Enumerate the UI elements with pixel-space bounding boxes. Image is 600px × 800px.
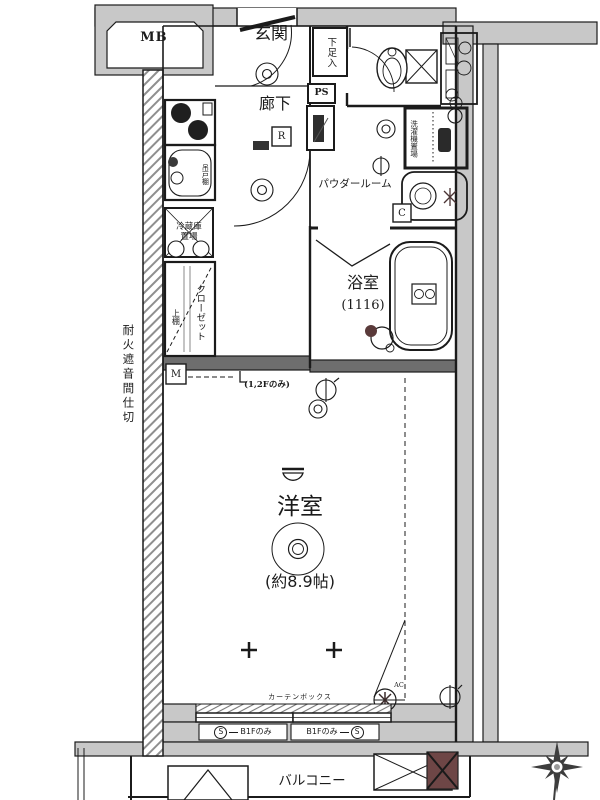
label-entrance: 玄関 bbox=[233, 20, 309, 48]
label-closet: クローゼット bbox=[191, 270, 207, 354]
stove-icon bbox=[165, 100, 215, 145]
label-corridor: 廊下 bbox=[240, 92, 310, 116]
label-western-room: 洋室 bbox=[258, 491, 342, 525]
shutter-note-left: S B1Fのみ bbox=[199, 724, 287, 740]
label-bathroom: 浴室 bbox=[330, 270, 396, 296]
outdoor-unit-space bbox=[374, 752, 458, 790]
shutter-dash bbox=[340, 732, 349, 733]
shutter-dash bbox=[229, 732, 238, 733]
label-meter-box: MB bbox=[95, 5, 213, 71]
room-ceiling-light-icon bbox=[272, 523, 324, 575]
label-hanging-cabinet: 吊戸棚 bbox=[198, 152, 211, 196]
cross-marks bbox=[241, 642, 342, 658]
powder-room-symbols bbox=[373, 120, 395, 176]
mark-m: M bbox=[166, 364, 186, 384]
label-western-room-size: (約8.9帖) bbox=[240, 569, 360, 595]
label-powder-room: パウダールーム bbox=[300, 177, 410, 193]
shutter-s-icon: S bbox=[214, 726, 227, 739]
label-pipe-space: PS bbox=[308, 84, 335, 103]
powder-room-door bbox=[234, 150, 310, 226]
shutter-note-text: B1Fのみ bbox=[240, 728, 271, 737]
partition-wall-hatched bbox=[143, 70, 163, 756]
floorplan: MB 玄関 下足入 廊下 PS パウダールーム 洗濯機置場 吊戸棚 冷蔵庫 置場… bbox=[0, 0, 600, 800]
shutter-note-right: B1Fのみ S bbox=[291, 724, 379, 740]
shutter-note-text: B1Fのみ bbox=[306, 728, 337, 737]
label-fridge-line2: 置場 bbox=[180, 233, 197, 242]
label-floor-note: (1,2Fのみ) bbox=[244, 379, 306, 393]
label-shoe-box: 下足入 bbox=[316, 30, 344, 75]
bath-folding-door bbox=[316, 240, 390, 266]
label-partition: 耐火遮音間仕切 bbox=[118, 302, 138, 447]
label-curtain-box: カーテンボックス bbox=[252, 692, 348, 703]
shutter-s-icon: S bbox=[351, 726, 364, 739]
floorplan-geometry bbox=[0, 0, 600, 800]
bathtub-icon bbox=[390, 242, 452, 350]
escape-hatch-icon bbox=[168, 766, 248, 800]
label-bathroom-size: (1116) bbox=[330, 297, 396, 315]
label-washing-machine: 洗濯機置場 bbox=[406, 111, 421, 166]
label-upper-shelf: 上棚 bbox=[169, 300, 181, 334]
mark-r: R bbox=[272, 127, 291, 146]
toilet-icon bbox=[350, 28, 437, 92]
mark-ac: AC bbox=[389, 681, 409, 690]
label-balcony: バルコニー bbox=[268, 769, 356, 793]
detector-icon bbox=[282, 469, 304, 480]
fire-alarm-icon bbox=[253, 141, 269, 150]
mark-c: C bbox=[393, 204, 411, 222]
